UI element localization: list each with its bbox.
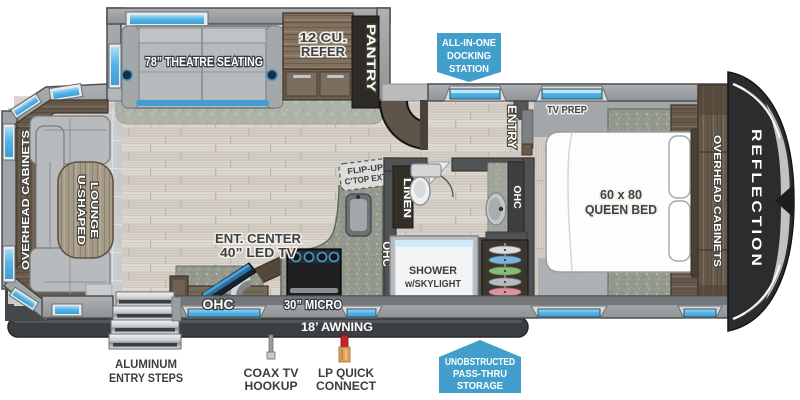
svg-text:OHC: OHC (511, 185, 523, 209)
svg-text:LOUNGE: LOUNGE (88, 182, 99, 238)
svg-text:78” THEATRE SEATING: 78” THEATRE SEATING (145, 54, 263, 69)
svg-text:REFLECTION: REFLECTION (749, 129, 765, 269)
svg-text:COAX TV: COAX TV (244, 366, 299, 380)
svg-text:12 CU.: 12 CU. (300, 31, 347, 45)
svg-text:ENTRY STEPS: ENTRY STEPS (109, 371, 183, 385)
svg-text:REFER: REFER (301, 45, 345, 59)
svg-text:ALL-IN-ONE: ALL-IN-ONE (442, 37, 496, 49)
svg-text:30” MICRO: 30” MICRO (284, 297, 342, 312)
svg-text:STORAGE: STORAGE (457, 380, 503, 392)
svg-text:OVERHEAD CABINETS: OVERHEAD CABINETS (711, 135, 723, 267)
svg-text:LP QUICK: LP QUICK (318, 366, 374, 380)
svg-text:OHC: OHC (202, 296, 233, 312)
svg-text:ENT. CENTER: ENT. CENTER (215, 232, 301, 246)
svg-text:U-SHAPED: U-SHAPED (75, 175, 86, 245)
svg-text:QUEEN BED: QUEEN BED (585, 203, 657, 217)
svg-text:60 x 80: 60 x 80 (600, 188, 642, 202)
svg-text:ENTRY: ENTRY (505, 105, 517, 149)
svg-text:TV PREP: TV PREP (547, 105, 587, 116)
svg-text:DOCKING: DOCKING (447, 50, 491, 62)
svg-text:w/SKYLIGHT: w/SKYLIGHT (404, 279, 461, 290)
svg-text:HOOKUP: HOOKUP (245, 379, 298, 393)
svg-text:UNOBSTRUCTED: UNOBSTRUCTED (445, 356, 515, 368)
svg-text:STATION: STATION (449, 63, 489, 75)
svg-text:ALUMINUM: ALUMINUM (115, 357, 177, 371)
svg-text:18’ AWNING: 18’ AWNING (301, 320, 373, 334)
svg-text:PASS-THRU: PASS-THRU (453, 368, 507, 380)
svg-text:CONNECT: CONNECT (316, 379, 377, 393)
svg-text:SHOWER: SHOWER (409, 265, 457, 277)
svg-text:PANTRY: PANTRY (364, 24, 376, 92)
svg-text:40” LED TV: 40” LED TV (220, 246, 297, 260)
